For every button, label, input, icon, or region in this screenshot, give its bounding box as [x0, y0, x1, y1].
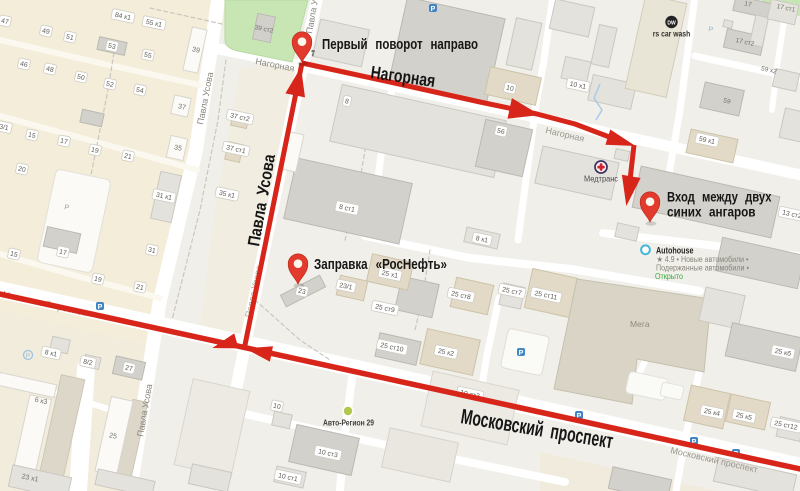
svg-text:rs car wash: rs car wash: [653, 30, 691, 39]
svg-text:P: P: [26, 353, 31, 360]
svg-text:Мега: Мега: [630, 319, 650, 329]
svg-text:Открыто: Открыто: [655, 272, 684, 281]
svg-text:Первый поворот направо: Первый поворот направо: [322, 37, 478, 53]
svg-text:P: P: [519, 350, 524, 357]
svg-text:синих ангаров: синих ангаров: [667, 204, 756, 220]
svg-text:Авто-Регион 29: Авто-Регион 29: [323, 419, 374, 428]
svg-text:DW: DW: [667, 20, 676, 26]
svg-text:P: P: [431, 6, 436, 13]
svg-text:Вход между двух: Вход между двух: [667, 189, 772, 205]
svg-text:P: P: [98, 304, 103, 311]
svg-text:Заправка «РосНефть»: Заправка «РосНефть»: [314, 257, 447, 273]
svg-text:Медтранс: Медтранс: [584, 174, 618, 184]
svg-text:Autohouse: Autohouse: [656, 245, 694, 255]
